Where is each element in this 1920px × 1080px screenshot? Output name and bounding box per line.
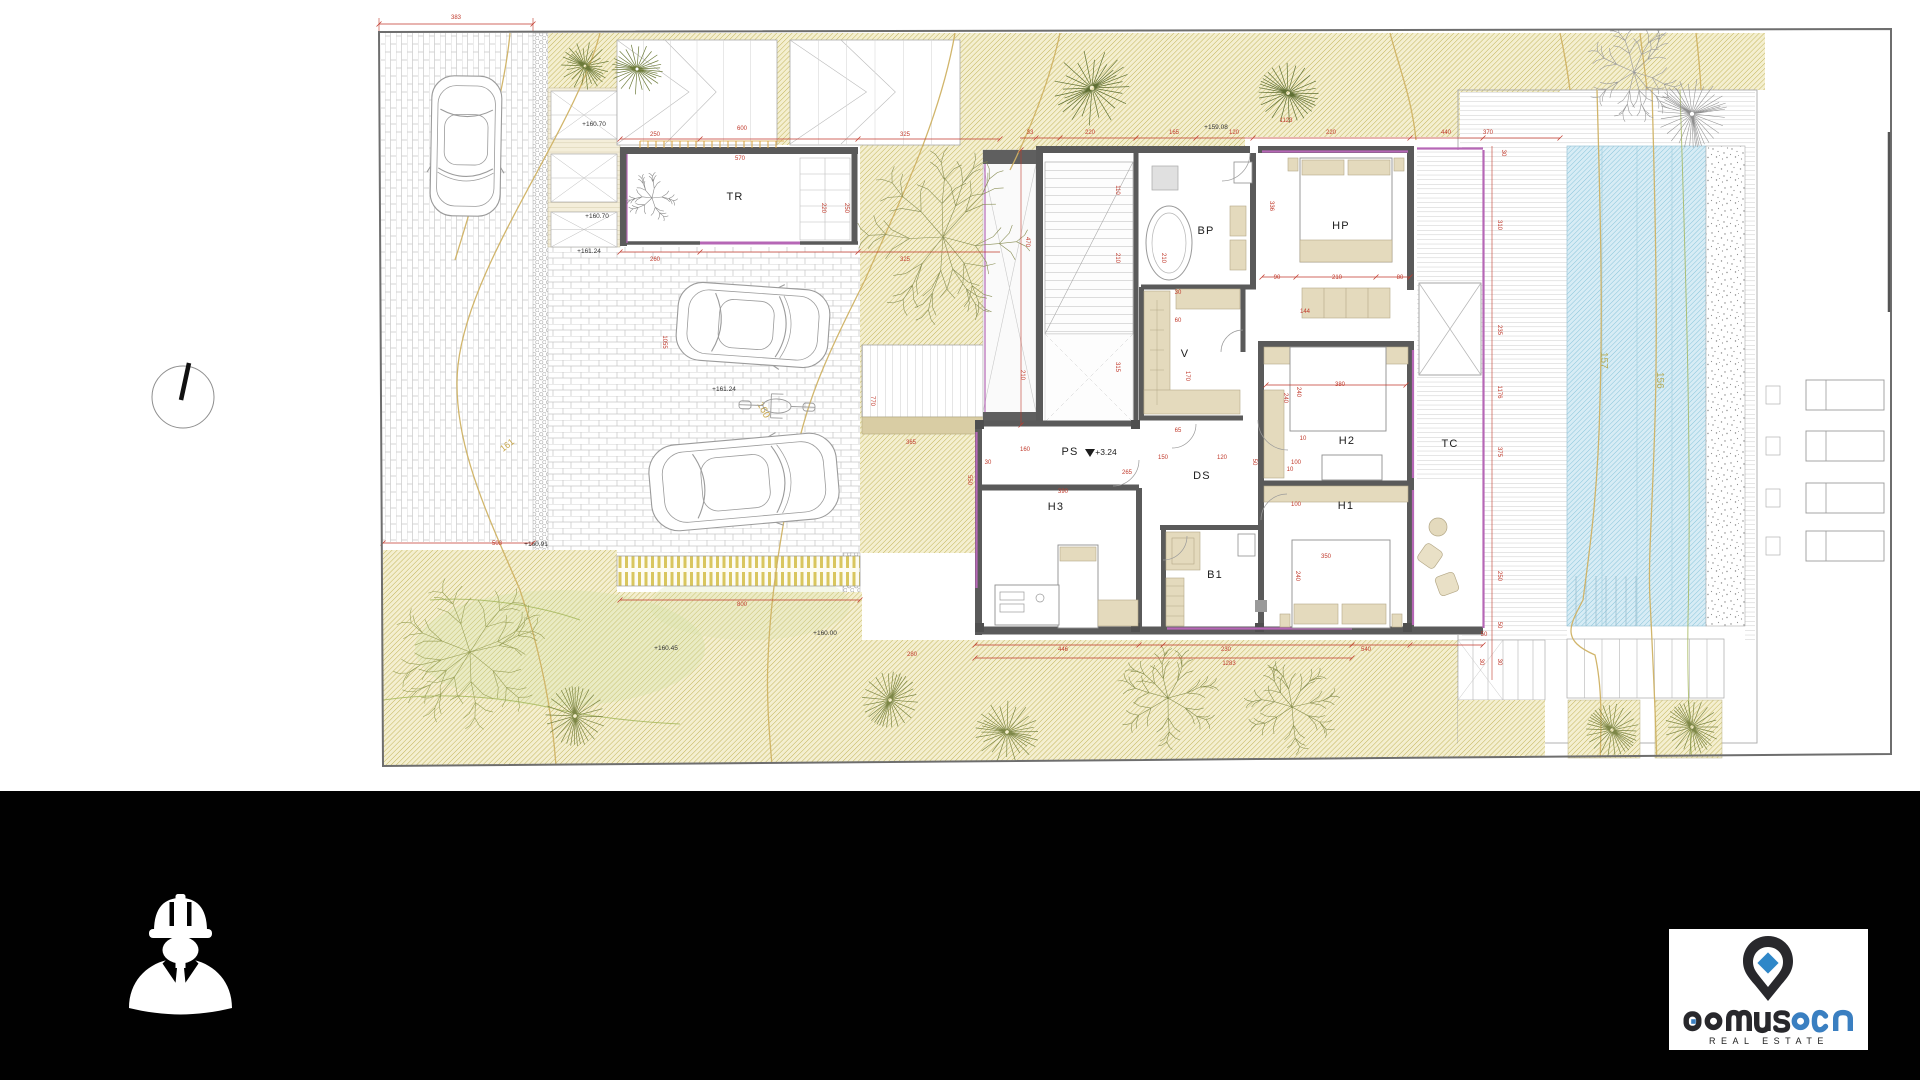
- svg-text:110: 110: [1114, 185, 1120, 195]
- svg-text:390: 390: [1058, 489, 1069, 495]
- svg-text:120: 120: [1217, 455, 1228, 461]
- svg-text:220: 220: [820, 203, 826, 214]
- svg-text:375: 375: [1496, 447, 1502, 458]
- svg-text:260: 260: [650, 257, 661, 263]
- svg-text:33: 33: [1027, 130, 1034, 136]
- svg-text:350: 350: [1321, 554, 1332, 560]
- svg-text:315: 315: [1114, 362, 1120, 373]
- svg-text:157: 157: [1598, 352, 1609, 369]
- svg-text:210: 210: [1332, 275, 1343, 281]
- svg-text:+160.70: +160.70: [582, 121, 606, 128]
- svg-text:30: 30: [1175, 290, 1182, 296]
- svg-text:280: 280: [907, 652, 918, 658]
- svg-text:+160.00: +160.00: [813, 630, 837, 637]
- svg-text:50: 50: [1481, 632, 1488, 638]
- svg-text:250: 250: [650, 132, 661, 138]
- svg-text:144: 144: [1300, 309, 1311, 315]
- svg-text:90: 90: [1274, 275, 1281, 281]
- svg-text:PS: PS: [1061, 446, 1078, 458]
- svg-text:30: 30: [1500, 150, 1506, 157]
- svg-text:50: 50: [1251, 459, 1257, 466]
- svg-text:440: 440: [1441, 130, 1452, 136]
- svg-text:265: 265: [1122, 470, 1133, 476]
- svg-text:100: 100: [1291, 502, 1302, 508]
- svg-text:+160.45: +160.45: [654, 645, 678, 652]
- svg-text:600: 600: [737, 126, 748, 132]
- svg-text:325: 325: [900, 257, 911, 263]
- svg-text:30: 30: [985, 460, 992, 466]
- svg-text:80: 80: [1397, 275, 1404, 281]
- svg-text:240: 240: [1282, 393, 1288, 404]
- svg-text:+160.70: +160.70: [585, 213, 609, 220]
- svg-text:1176: 1176: [1496, 386, 1502, 400]
- svg-text:210: 210: [1160, 253, 1166, 264]
- svg-text:120: 120: [1229, 130, 1240, 136]
- svg-text:10: 10: [1287, 467, 1294, 473]
- svg-text:TR: TR: [726, 191, 743, 203]
- svg-text:H2: H2: [1339, 435, 1355, 447]
- svg-text:250: 250: [843, 203, 849, 214]
- svg-text:V: V: [1181, 348, 1190, 360]
- svg-text:B1: B1: [1207, 569, 1223, 581]
- svg-text:160: 160: [1020, 447, 1031, 453]
- svg-text:570: 570: [735, 156, 746, 162]
- svg-text:370: 370: [1483, 130, 1494, 136]
- svg-text:BP: BP: [1197, 225, 1214, 237]
- svg-text:+3.24: +3.24: [1095, 447, 1117, 457]
- svg-text:325: 325: [900, 132, 911, 138]
- svg-text:220: 220: [1085, 130, 1096, 136]
- svg-text:365: 365: [906, 440, 917, 446]
- svg-text:770: 770: [869, 396, 875, 407]
- svg-text:165: 165: [1169, 130, 1180, 136]
- svg-text:REAL ESTATE: REAL ESTATE: [1709, 1036, 1829, 1046]
- svg-text:+159.08: +159.08: [1204, 124, 1228, 131]
- svg-text:TC: TC: [1441, 438, 1458, 450]
- svg-text:470: 470: [1024, 237, 1030, 248]
- svg-text:1055: 1055: [661, 335, 667, 349]
- svg-text:60: 60: [1175, 318, 1182, 324]
- svg-text:550: 550: [966, 475, 972, 486]
- svg-text:380: 380: [1335, 382, 1346, 388]
- svg-text:H3: H3: [1048, 501, 1064, 513]
- svg-text:540: 540: [1361, 647, 1372, 653]
- svg-text:DS: DS: [1193, 470, 1211, 482]
- svg-text:150: 150: [1158, 455, 1169, 461]
- svg-text:230: 230: [1221, 647, 1232, 653]
- svg-text:210: 210: [1019, 370, 1025, 381]
- svg-text:30: 30: [1496, 659, 1502, 666]
- svg-text:800: 800: [737, 602, 748, 608]
- svg-text:100: 100: [1291, 460, 1302, 466]
- svg-text:+161.24: +161.24: [712, 386, 736, 393]
- svg-text:1123: 1123: [1280, 118, 1294, 124]
- svg-text:383: 383: [451, 15, 462, 21]
- svg-text:156: 156: [1654, 372, 1665, 389]
- svg-text:336: 336: [1268, 201, 1274, 212]
- svg-text:446: 446: [1058, 647, 1069, 653]
- svg-text:240: 240: [1295, 387, 1301, 398]
- svg-text:+160.91: +160.91: [524, 541, 548, 548]
- svg-text:210: 210: [1114, 253, 1120, 264]
- svg-text:+161.24: +161.24: [577, 248, 601, 255]
- svg-text:235: 235: [1496, 325, 1502, 336]
- svg-text:240: 240: [1294, 571, 1300, 582]
- svg-text:H1: H1: [1338, 500, 1354, 512]
- svg-text:250: 250: [1496, 571, 1502, 582]
- svg-text:65: 65: [1175, 428, 1182, 434]
- svg-text:220: 220: [1326, 130, 1337, 136]
- svg-text:10: 10: [1300, 436, 1307, 442]
- svg-text:310: 310: [1496, 220, 1502, 231]
- svg-text:503: 503: [492, 541, 503, 547]
- svg-text:170: 170: [1184, 371, 1190, 382]
- svg-text:HP: HP: [1332, 220, 1350, 232]
- svg-text:50: 50: [1496, 622, 1502, 629]
- svg-text:1283: 1283: [1222, 661, 1236, 667]
- svg-text:30: 30: [1478, 659, 1484, 666]
